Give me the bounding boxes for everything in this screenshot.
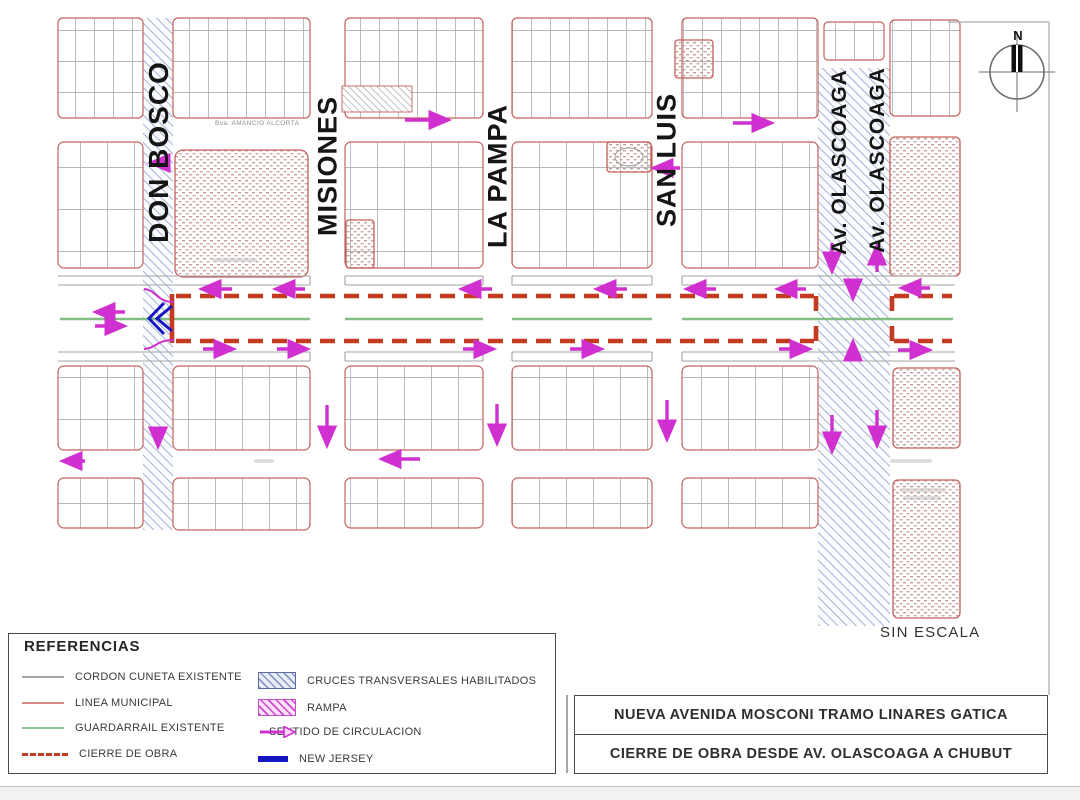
blue-hatch-swatch [258, 672, 296, 689]
legend-title: REFERENCIAS [24, 638, 140, 655]
red-dashed-swatch [22, 753, 68, 756]
green-line-swatch [22, 727, 64, 729]
street-label-misiones: MISIONES [313, 96, 344, 236]
gray-line-swatch [22, 676, 64, 678]
plan-sheet: N DON BOSCO MISIONES LA PAMPA SAN LUIS A… [0, 0, 1080, 800]
scale-note: SIN ESCALA [880, 624, 980, 641]
micro-label-smudge [890, 459, 932, 463]
blue-bar-swatch [258, 756, 288, 762]
street-label-olascoaga-east: Av. OLASCOAGA [866, 67, 890, 253]
micro-label-smudge [254, 459, 274, 463]
legend-item-linea-municipal: LINEA MUNICIPAL [22, 697, 173, 709]
magenta-hatch-swatch [258, 699, 296, 716]
legend-item-cruces-transversales: CRUCES TRANSVERSALES HABILITADOS [258, 672, 536, 689]
street-label-la-pampa: LA PAMPA [483, 104, 514, 248]
legend-item-sentido-circulacion: SENTIDO DE CIRCULACION [258, 726, 422, 738]
street-label-don-bosco: DON BOSCO [143, 61, 175, 243]
street-label-olascoaga-west: Av. OLASCOAGA [828, 69, 852, 255]
title-block-line1: NUEVA AVENIDA MOSCONI TRAMO LINARES GATI… [574, 695, 1048, 735]
legend-item-cierre-de-obra: CIERRE DE OBRA [22, 748, 177, 760]
hatched-parcel [342, 86, 412, 112]
legend-item-cordon-cuneta: CORDON CUNETA EXISTENTE [22, 671, 242, 683]
legend-item-guardarrail: GUARDARRAIL EXISTENTE [22, 722, 225, 734]
legend-item-rampa: RAMPA [258, 699, 347, 716]
north-compass: N [979, 28, 1055, 112]
title-block-line2: CIERRE DE OBRA DESDE AV. OLASCOAGA A CHU… [574, 734, 1048, 774]
micro-label-smudge [900, 488, 946, 492]
micro-label-smudge [903, 496, 941, 500]
street-label-san-luis: SAN LUIS [652, 93, 683, 227]
sheet-bottom-edge [0, 786, 1080, 800]
compass-north-label: N [1013, 28, 1022, 43]
legend-item-new-jersey: NEW JERSEY [258, 753, 374, 765]
micro-label-smudge [212, 258, 257, 262]
red-line-swatch [22, 702, 64, 704]
street-label-amancio-alcorta: Bva. AMANCIO ALCORTA [215, 120, 299, 127]
